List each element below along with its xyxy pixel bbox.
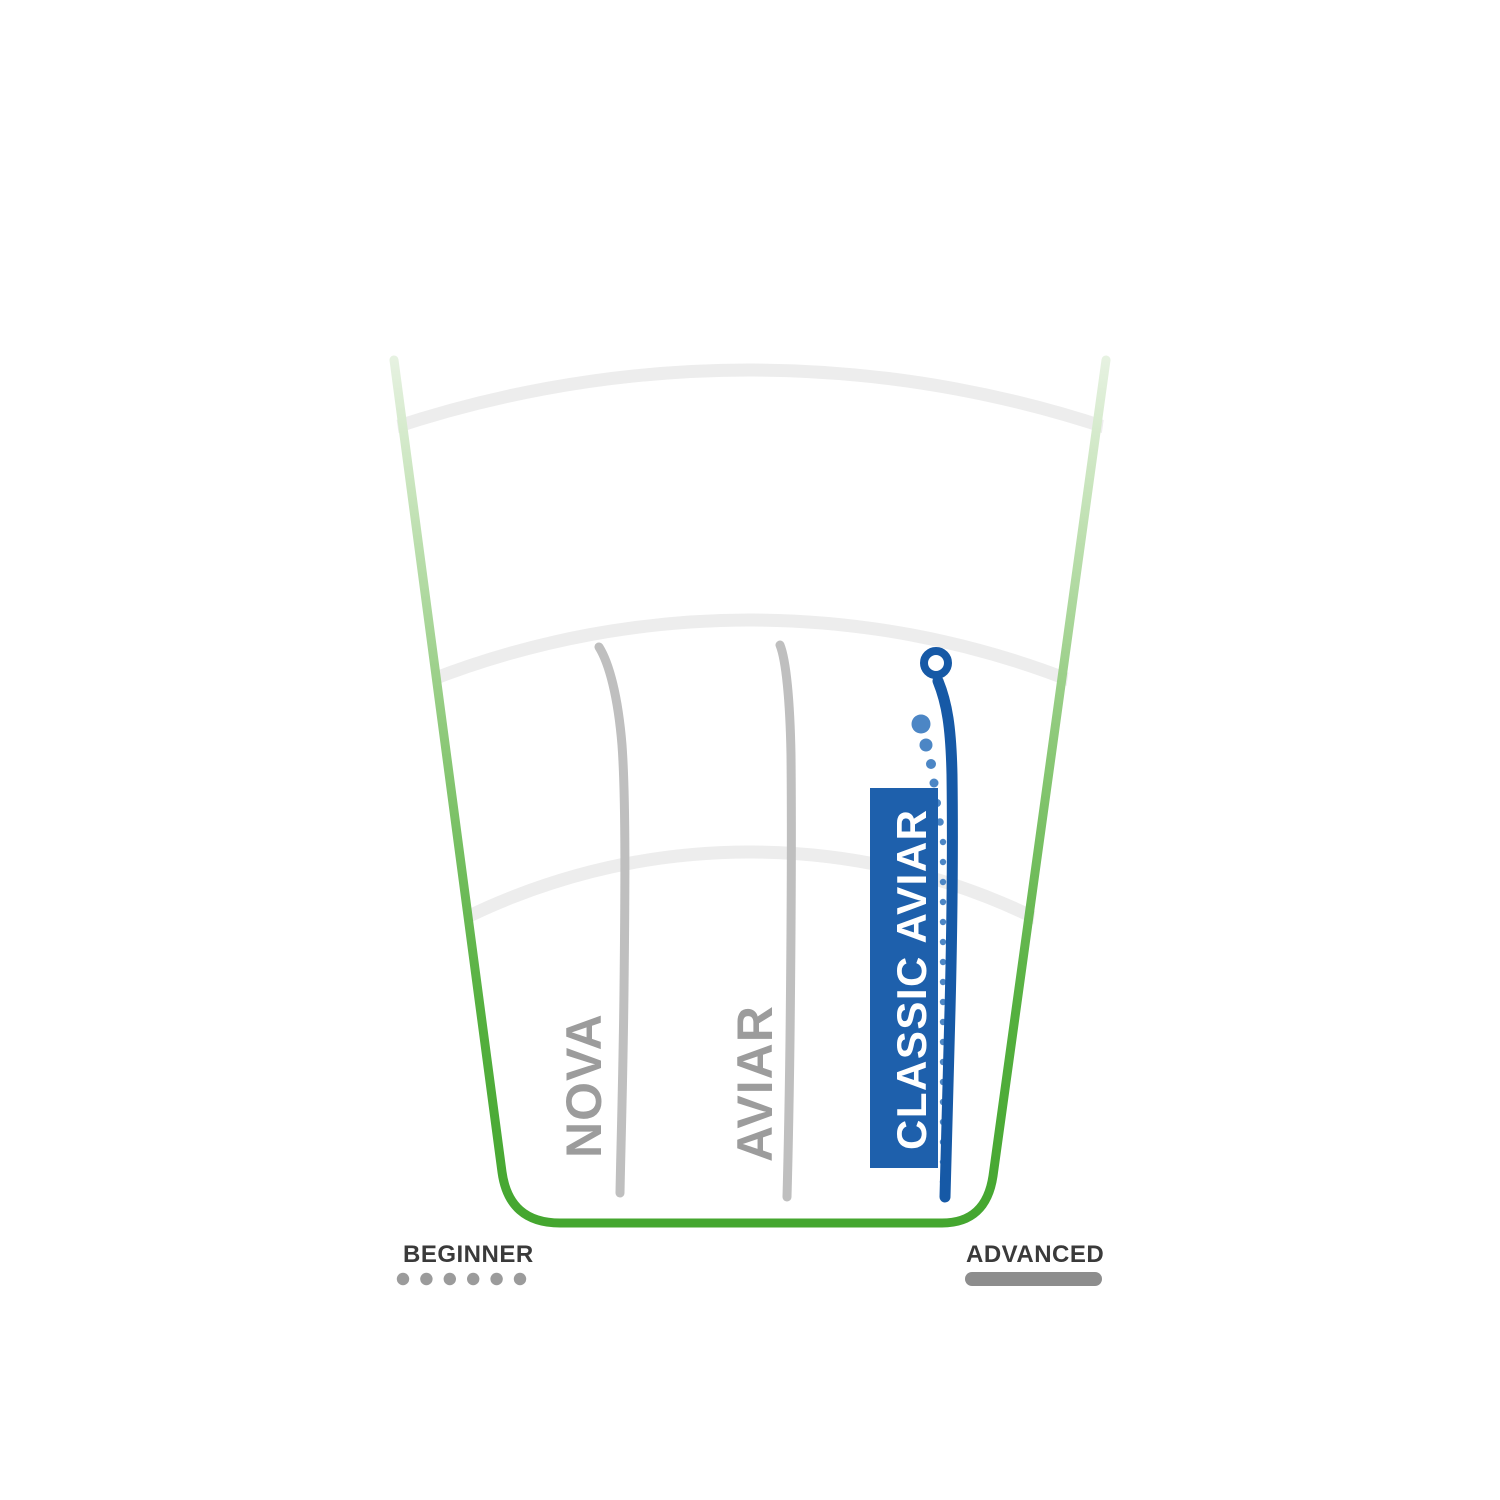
- aviar-label: AVIAR: [727, 1005, 783, 1162]
- nova-label: NOVA: [556, 1013, 612, 1158]
- advanced-solid-scale: [965, 1272, 1102, 1286]
- flight-chart: NOVA AVIAR CLASSIC AVIAR BEGINNER ADVANC…: [0, 0, 1500, 1500]
- fade-dot: [920, 739, 933, 752]
- beginner-scale-dot: [467, 1273, 479, 1285]
- advanced-legend: ADVANCED: [965, 1241, 1104, 1286]
- distance-arc-1: [0, 370, 1500, 1500]
- fade-dot: [926, 759, 936, 769]
- classic-aviar-flight-path: [938, 681, 952, 1197]
- flight-chart-canvas: NOVA AVIAR CLASSIC AVIAR BEGINNER ADVANC…: [0, 0, 1500, 1500]
- beginner-scale-dot: [397, 1273, 409, 1285]
- beginner-legend: BEGINNER: [397, 1241, 534, 1285]
- fade-dot: [940, 899, 946, 905]
- fade-dot: [940, 839, 946, 845]
- distance-arc-3: [102, 852, 1398, 1500]
- beginner-scale-dot: [514, 1273, 526, 1285]
- beginner-label: BEGINNER: [403, 1241, 534, 1268]
- fade-dot: [940, 919, 946, 925]
- fade-dot: [940, 959, 946, 965]
- beginner-dotted-scale: [397, 1273, 526, 1285]
- fade-dot: [912, 715, 931, 734]
- aviar-flight: AVIAR: [727, 645, 791, 1197]
- distance-arcs: [0, 370, 1500, 1500]
- fade-dot: [940, 859, 946, 865]
- nova-flight: NOVA: [556, 647, 625, 1193]
- landing-circle-marker: [924, 651, 948, 675]
- beginner-scale-dot: [490, 1273, 502, 1285]
- classic-aviar-label: CLASSIC AVIAR: [888, 808, 935, 1150]
- fade-dot: [940, 939, 946, 945]
- fade-dot: [930, 779, 939, 788]
- classic-aviar-flight: CLASSIC AVIAR: [870, 651, 952, 1197]
- fade-dot: [940, 879, 946, 885]
- advanced-label: ADVANCED: [966, 1241, 1104, 1268]
- beginner-scale-dot: [420, 1273, 432, 1285]
- beginner-scale-dot: [444, 1273, 456, 1285]
